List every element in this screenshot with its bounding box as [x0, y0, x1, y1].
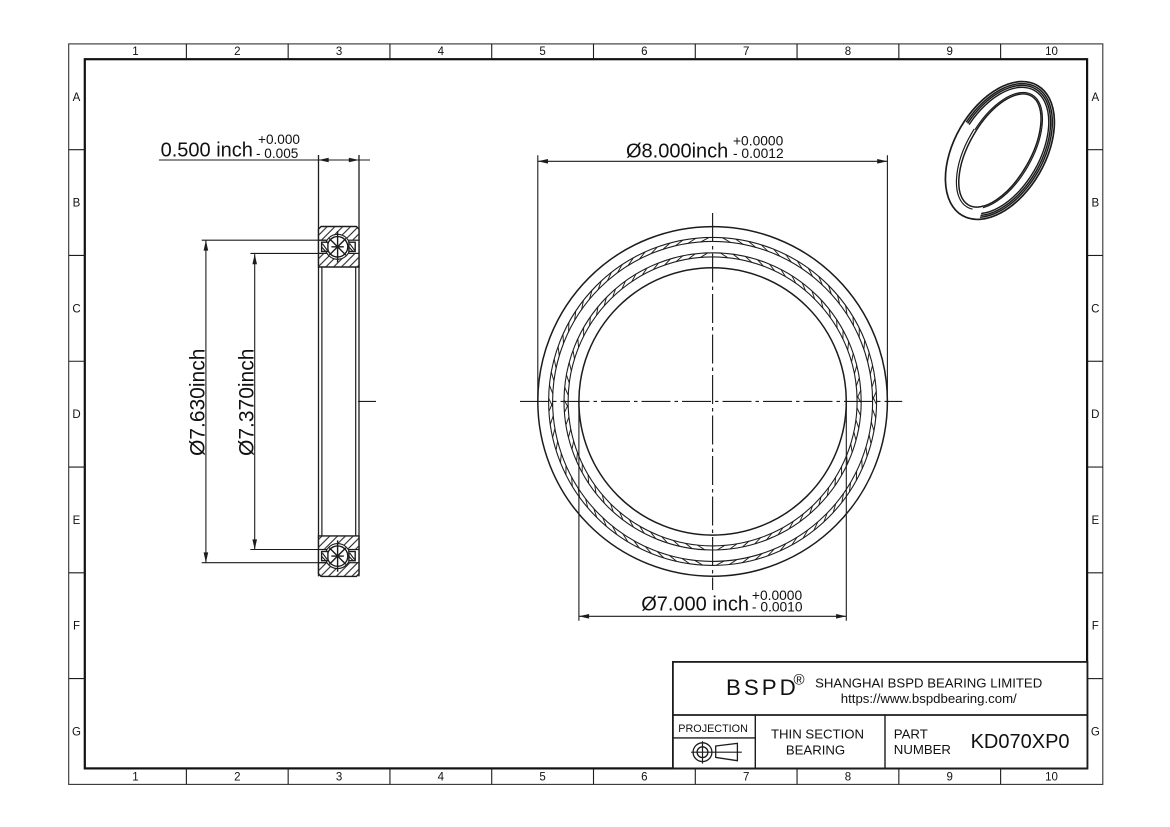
svg-text:5: 5	[539, 771, 545, 783]
svg-text:BSPD: BSPD	[726, 675, 799, 700]
svg-text:2: 2	[234, 46, 240, 58]
svg-text:4: 4	[438, 46, 445, 58]
svg-text:E: E	[73, 515, 81, 527]
svg-text:BEARING: BEARING	[786, 742, 845, 757]
svg-text:10: 10	[1045, 771, 1058, 783]
svg-text:A: A	[1091, 92, 1099, 104]
svg-text:6: 6	[641, 46, 647, 58]
svg-text:PROJECTION: PROJECTION	[678, 723, 748, 735]
svg-text:- 0.0010: - 0.0010	[752, 599, 803, 614]
svg-text:F: F	[73, 621, 80, 633]
svg-text:Ø7.000 inch: Ø7.000 inch	[641, 594, 749, 616]
svg-text:https://www.bspdbearing.com/: https://www.bspdbearing.com/	[841, 691, 1017, 706]
svg-text:SHANGHAI BSPD BEARING LIMITED: SHANGHAI BSPD BEARING LIMITED	[815, 676, 1042, 691]
svg-text:5: 5	[539, 46, 545, 58]
svg-text:Ø7.630inch: Ø7.630inch	[187, 349, 210, 456]
svg-text:+0.000: +0.000	[258, 132, 300, 147]
svg-text:D: D	[72, 409, 80, 421]
svg-text:1: 1	[132, 46, 138, 58]
svg-text:- 0.005: - 0.005	[256, 146, 298, 161]
svg-text:3: 3	[336, 46, 342, 58]
svg-text:G: G	[1091, 727, 1100, 739]
svg-text:®: ®	[794, 672, 805, 689]
svg-text:3: 3	[336, 771, 342, 783]
svg-text:C: C	[72, 303, 80, 315]
svg-text:KD070XP0: KD070XP0	[971, 731, 1070, 753]
svg-text:E: E	[1091, 515, 1099, 527]
svg-text:8: 8	[845, 46, 851, 58]
svg-text:PART: PART	[894, 727, 928, 742]
svg-text:0.500 inch: 0.500 inch	[161, 140, 253, 162]
svg-text:6: 6	[641, 771, 647, 783]
svg-text:9: 9	[947, 771, 953, 783]
svg-text:A: A	[73, 92, 81, 104]
svg-text:G: G	[72, 727, 81, 739]
svg-text:F: F	[1092, 621, 1099, 633]
svg-text:8: 8	[845, 771, 851, 783]
svg-text:10: 10	[1045, 46, 1058, 58]
svg-text:7: 7	[743, 46, 749, 58]
svg-text:B: B	[1091, 198, 1099, 210]
svg-text:7: 7	[743, 771, 749, 783]
svg-text:C: C	[1091, 303, 1099, 315]
svg-text:NUMBER: NUMBER	[894, 742, 951, 757]
svg-text:9: 9	[947, 46, 953, 58]
svg-text:Ø7.370inch: Ø7.370inch	[235, 349, 258, 456]
svg-text:Ø8.000inch: Ø8.000inch	[626, 140, 728, 162]
svg-text:- 0.0012: - 0.0012	[733, 146, 784, 161]
svg-text:D: D	[1091, 409, 1099, 421]
svg-text:THIN SECTION: THIN SECTION	[771, 726, 864, 741]
svg-text:B: B	[73, 198, 81, 210]
svg-text:1: 1	[132, 771, 138, 783]
svg-text:2: 2	[234, 771, 240, 783]
svg-text:4: 4	[438, 771, 445, 783]
